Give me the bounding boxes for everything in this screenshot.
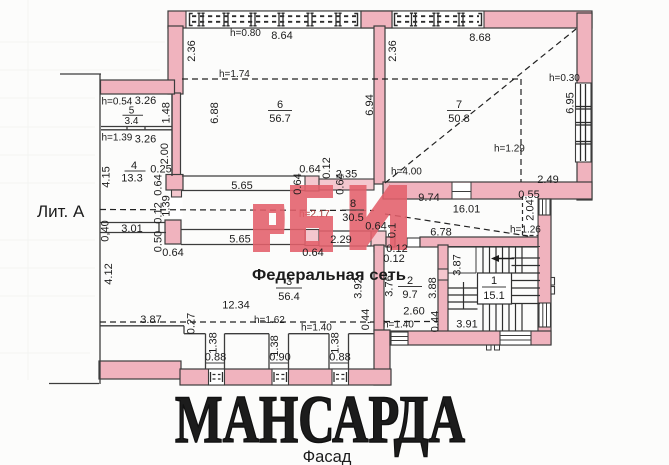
svg-text:0.1: 0.1 — [387, 223, 399, 238]
svg-text:8.64: 8.64 — [271, 30, 292, 42]
svg-text:0.50: 0.50 — [153, 231, 165, 252]
svg-text:0.64: 0.64 — [302, 247, 323, 259]
svg-text:15.1: 15.1 — [483, 290, 504, 302]
svg-text:2.36: 2.36 — [186, 40, 198, 61]
svg-text:0.64: 0.64 — [292, 173, 304, 194]
svg-text:4.15: 4.15 — [101, 166, 113, 187]
svg-text:h=0.30: h=0.30 — [549, 73, 580, 84]
svg-text:h=1.62: h=1.62 — [254, 315, 285, 326]
svg-text:h=1.40: h=1.40 — [383, 320, 414, 331]
svg-text:0.44: 0.44 — [430, 311, 442, 332]
svg-text:1.38: 1.38 — [330, 332, 342, 353]
svg-text:h=1.26: h=1.26 — [510, 225, 541, 236]
svg-text:1.38: 1.38 — [208, 332, 220, 353]
svg-text:3.26: 3.26 — [135, 134, 156, 146]
svg-text:16.01: 16.01 — [453, 204, 481, 216]
svg-text:2.60: 2.60 — [403, 306, 424, 318]
svg-text:3.91: 3.91 — [456, 319, 477, 331]
svg-text:1.48: 1.48 — [161, 102, 173, 123]
svg-text:12.34: 12.34 — [222, 300, 250, 312]
svg-text:3.26: 3.26 — [135, 95, 156, 107]
svg-text:6.88: 6.88 — [209, 102, 221, 123]
svg-text:0,40: 0,40 — [100, 220, 112, 241]
svg-text:56.4: 56.4 — [278, 291, 299, 303]
svg-text:2.36: 2.36 — [387, 40, 399, 61]
svg-text:0.64: 0.64 — [365, 221, 386, 233]
svg-text:2.49: 2.49 — [537, 174, 558, 186]
svg-text:2.04: 2.04 — [525, 199, 537, 220]
svg-text:1.38: 1.38 — [269, 335, 281, 356]
svg-text:13.3: 13.3 — [121, 173, 142, 185]
svg-text:Фасад: Фасад — [303, 448, 352, 465]
svg-text:5.65: 5.65 — [229, 234, 250, 246]
svg-text:0.27: 0.27 — [186, 313, 198, 334]
svg-text:3: 3 — [286, 276, 292, 288]
svg-text:h=0.54: h=0.54 — [102, 97, 133, 108]
svg-text:2.00: 2.00 — [159, 143, 171, 164]
svg-text:30.5: 30.5 — [342, 212, 363, 224]
svg-text:МАНСАРДА: МАНСАРДА — [175, 381, 465, 457]
svg-text:0.64: 0.64 — [162, 247, 183, 259]
svg-text:6.78: 6.78 — [430, 227, 451, 239]
svg-text:h=1.29: h=1.29 — [494, 144, 525, 155]
svg-text:0.12: 0.12 — [153, 202, 165, 223]
svg-text:h=1.74: h=1.74 — [219, 69, 250, 80]
svg-text:3.87: 3.87 — [140, 314, 161, 326]
svg-text:h=1.39: h=1.39 — [102, 133, 133, 144]
svg-text:h=1.40: h=1.40 — [301, 323, 332, 334]
svg-text:Лит. А: Лит. А — [37, 202, 85, 221]
svg-text:2.29: 2.29 — [330, 234, 351, 246]
svg-text:9.74: 9.74 — [418, 192, 439, 204]
svg-text:7: 7 — [456, 99, 462, 111]
svg-text:3.4: 3.4 — [125, 116, 139, 127]
svg-text:0.12: 0.12 — [383, 253, 404, 265]
svg-text:2: 2 — [407, 275, 413, 287]
svg-text:3.87: 3.87 — [452, 254, 464, 275]
svg-text:4.12: 4.12 — [103, 263, 115, 284]
svg-text:0.64: 0.64 — [335, 173, 347, 194]
svg-text:6: 6 — [277, 99, 283, 111]
svg-text:0.12: 0.12 — [321, 157, 333, 178]
svg-text:4: 4 — [131, 160, 137, 172]
svg-text:8.68: 8.68 — [469, 32, 490, 44]
svg-text:6.95: 6.95 — [565, 92, 577, 113]
svg-text:6.94: 6.94 — [364, 94, 376, 115]
svg-text:3.76: 3.76 — [384, 275, 396, 296]
svg-text:h=0.80: h=0.80 — [230, 28, 261, 39]
svg-text:3.92: 3.92 — [353, 277, 365, 298]
svg-text:3.88: 3.88 — [427, 277, 439, 298]
svg-text:56.7: 56.7 — [269, 113, 290, 125]
svg-text:3.01: 3.01 — [121, 223, 142, 235]
svg-text:50.8: 50.8 — [448, 113, 469, 125]
svg-text:8: 8 — [350, 198, 356, 210]
svg-text:0,44: 0,44 — [360, 309, 372, 330]
svg-text:9.7: 9.7 — [402, 289, 417, 301]
svg-text:h=4.00: h=4.00 — [391, 167, 422, 178]
svg-text:1: 1 — [491, 275, 497, 287]
svg-text:0,55: 0,55 — [518, 189, 539, 201]
svg-text:5.65: 5.65 — [231, 180, 252, 192]
svg-text:0.64: 0.64 — [153, 174, 165, 195]
